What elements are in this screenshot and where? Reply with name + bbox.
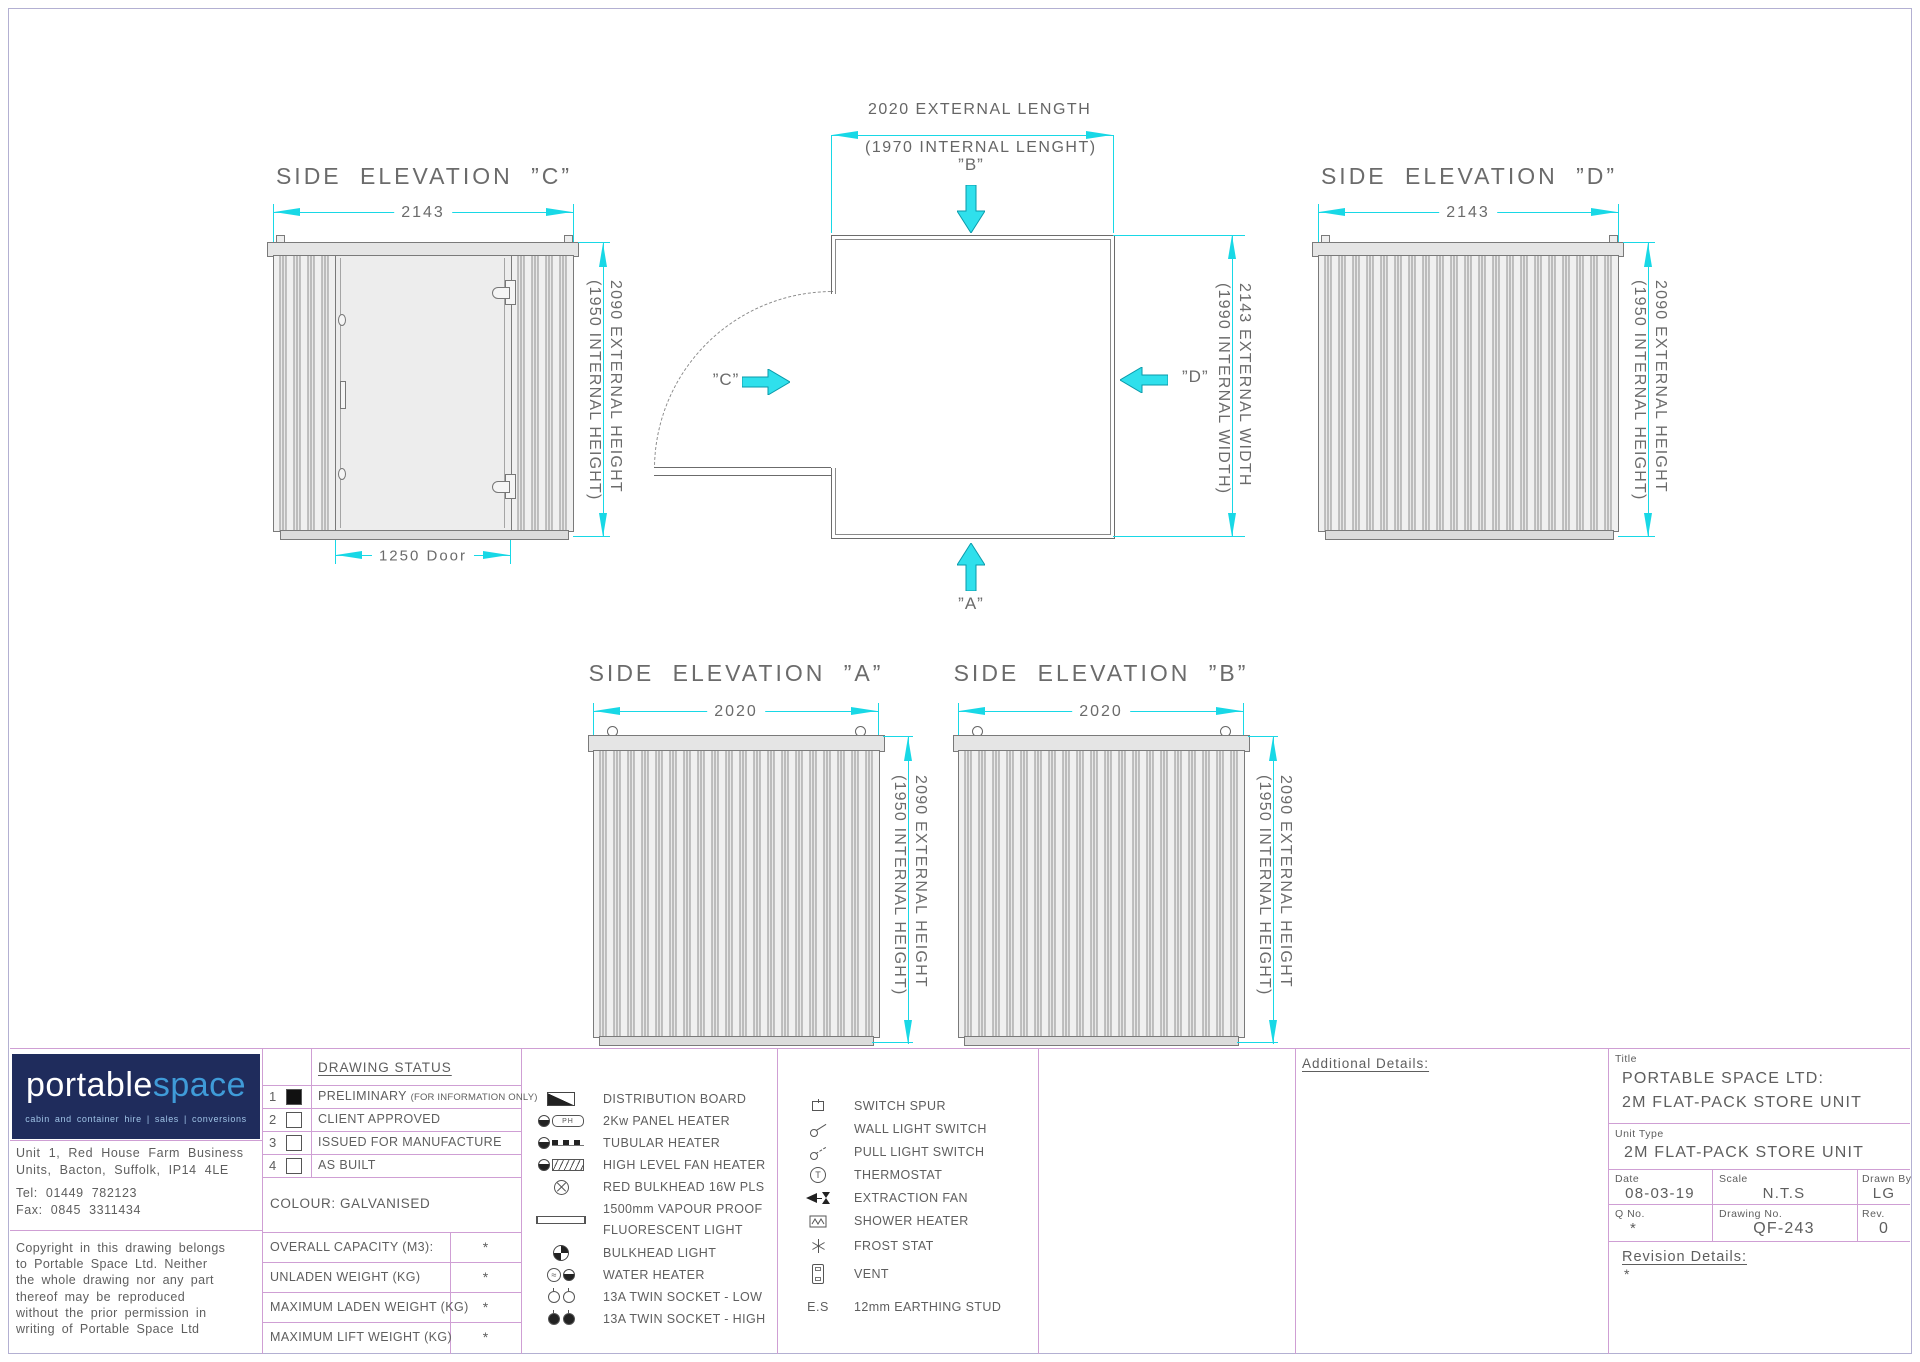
- weight-row-label: OVERALL CAPACITY (M3):: [270, 1232, 433, 1262]
- q-no-label: Q No.: [1615, 1208, 1645, 1220]
- bulkhead-light-icon: [553, 1245, 569, 1261]
- red-bulkhead-icon: [554, 1180, 569, 1195]
- revision-details-value: *: [1624, 1266, 1631, 1282]
- status-checkbox: [286, 1158, 302, 1174]
- door-hinge-icon: [492, 287, 510, 299]
- view-arrow-b-icon: [957, 185, 985, 233]
- unit-type-value: 2M FLAT-PACK STORE UNIT: [1624, 1144, 1864, 1162]
- titleblock-border: [1857, 1169, 1858, 1241]
- titleblock-border: [1608, 1241, 1910, 1242]
- vent-icon: [812, 1264, 824, 1284]
- elevation-c-height-dim: 2090 EXTERNAL HEIGHT (1950 INTERNAL HEIG…: [584, 280, 626, 501]
- dim-arrow-left-icon: [959, 707, 985, 715]
- dim-extension-line: [878, 703, 879, 737]
- dim-extension-line: [1113, 235, 1245, 236]
- dim-arrow-up-icon: [1228, 235, 1236, 259]
- logo-wordmark: portablespace: [12, 1066, 260, 1105]
- water-heater-icon: [547, 1268, 561, 1282]
- company-tel: Tel: 01449 782123: [16, 1185, 244, 1202]
- weight-row-value: *: [450, 1322, 521, 1352]
- titleblock-border: [1038, 1048, 1039, 1354]
- titleblock-border: [1608, 1123, 1910, 1124]
- drawing-title-line2: 2M FLAT-PACK STORE UNIT: [1622, 1094, 1862, 1112]
- view-arrow-d-icon: [1120, 367, 1168, 393]
- legend-item: PH 2Kw PANEL HEATER: [527, 1110, 730, 1132]
- elevation-d-width-dim: 2143: [1439, 204, 1497, 222]
- rev-value: 0: [1879, 1220, 1889, 1238]
- dim-arrow-right-icon: [483, 551, 509, 559]
- heater-lamp-icon: [538, 1115, 550, 1127]
- date-value: 08-03-19: [1625, 1185, 1695, 1202]
- dim-arrow-down-icon: [1228, 513, 1236, 537]
- elevation-c-door: [335, 256, 512, 530]
- titleblock-border: [1608, 1048, 1609, 1354]
- heater-lamp-icon: [538, 1159, 550, 1171]
- dim-arrow-up-icon: [904, 737, 912, 761]
- titleblock-border: [1712, 1169, 1713, 1241]
- weight-row-value: *: [450, 1292, 521, 1322]
- elevation-a-title: SIDE ELEVATION ”A”: [589, 660, 884, 687]
- elevation-b-title: SIDE ELEVATION ”B”: [954, 660, 1249, 687]
- elevation-b-height-dim: 2090 EXTERNAL HEIGHT (1950 INTERNAL HEIG…: [1254, 775, 1296, 996]
- weight-row-label: UNLADEN WEIGHT (KG): [270, 1262, 420, 1292]
- weight-row-label: MAXIMUM LIFT WEIGHT (KG): [270, 1322, 452, 1352]
- additional-details-header: Additional Details:: [1302, 1056, 1429, 1071]
- plan-length-dim-line1: 2020 EXTERNAL LENGTH: [868, 101, 1091, 119]
- elevation-a-base: [599, 1036, 874, 1046]
- door-width-dim: 1250 Door: [372, 548, 474, 565]
- dim-arrow-down-icon: [1269, 1020, 1277, 1044]
- dim-extension-line: [1243, 703, 1244, 737]
- dim-extension-line: [1113, 536, 1245, 537]
- elevation-b-panel: [958, 750, 1245, 1038]
- dim-extension-line: [510, 540, 511, 564]
- legend-item: VENT: [790, 1261, 889, 1287]
- scale-label: Scale: [1719, 1173, 1748, 1185]
- elevation-b-base: [964, 1036, 1239, 1046]
- elevation-a-height-dim: 2090 EXTERNAL HEIGHT (1950 INTERNAL HEIG…: [889, 775, 931, 996]
- twin-socket-low-icon: [548, 1291, 575, 1303]
- door-hinge-icon: [492, 481, 510, 493]
- status-checkbox: [286, 1112, 302, 1128]
- panel-heater-icon: PH: [552, 1115, 584, 1127]
- dim-arrow-up-icon: [1644, 243, 1652, 267]
- titleblock-border: [262, 1177, 521, 1178]
- status-row: 4 AS BUILT: [262, 1154, 521, 1177]
- dim-arrow-down-icon: [599, 513, 607, 537]
- drawing-sheet: SIDE ELEVATION ”C” 2143 1250 Door 2090 E…: [0, 0, 1920, 1362]
- dim-extension-line: [831, 135, 832, 233]
- switch-spur-icon: [811, 1099, 825, 1113]
- legend-item: 13A TWIN SOCKET - LOW: [527, 1286, 762, 1308]
- titleblock-border: [10, 1140, 262, 1141]
- earthing-stud-icon: E.S: [807, 1300, 829, 1314]
- titleblock-border: [1608, 1169, 1910, 1170]
- drawing-no-label: Drawing No.: [1719, 1208, 1782, 1220]
- titleblock-border: [10, 1230, 262, 1231]
- wall-light-switch-icon: [810, 1122, 826, 1137]
- copyright-notice: Copyright in this drawing belongs to Por…: [16, 1240, 258, 1337]
- legend-item: SWITCH SPUR: [790, 1095, 946, 1117]
- elevation-c-width-dim: 2143: [394, 204, 452, 222]
- dim-arrow-left-icon: [832, 131, 858, 139]
- dim-arrow-right-icon: [546, 208, 572, 216]
- legend-item: WATER HEATER: [527, 1264, 705, 1286]
- dim-arrow-left-icon: [274, 208, 300, 216]
- dim-arrow-left-icon: [336, 551, 362, 559]
- dim-arrow-left-icon: [594, 707, 620, 715]
- legend-item: 13A TWIN SOCKET - HIGH: [527, 1308, 766, 1330]
- elevation-c-title: SIDE ELEVATION ”C”: [276, 163, 572, 190]
- revision-details-header: Revision Details:: [1622, 1249, 1747, 1265]
- drawn-by-value: LG: [1873, 1185, 1895, 1202]
- q-no-value: *: [1630, 1220, 1637, 1237]
- distribution-board-icon: [547, 1092, 575, 1106]
- dim-arrow-right-icon: [1086, 131, 1112, 139]
- door-handle-icon: [338, 468, 346, 480]
- legend-item: TUBULAR HEATER: [527, 1132, 720, 1154]
- legend-item: 1500mm VAPOUR PROOF FLUORESCENT LIGHT: [527, 1198, 763, 1242]
- elevation-a-width-dim: 2020: [707, 703, 765, 721]
- frost-stat-icon: [811, 1239, 825, 1253]
- plan-view-walls: [831, 235, 1115, 539]
- drawing-status-header: DRAWING STATUS: [318, 1060, 452, 1075]
- legend-item: E.S 12mm EARTHING STUD: [790, 1296, 1001, 1318]
- drawing-title-line1: PORTABLE SPACE LTD:: [1622, 1070, 1824, 1088]
- dimension-line: [831, 135, 1113, 136]
- plan-open-door-leaf: [654, 467, 831, 476]
- legend-item: T THERMOSTAT: [790, 1164, 942, 1186]
- tubular-heater-icon: [552, 1140, 584, 1146]
- elevation-d-base: [1325, 530, 1614, 540]
- door-lock-slot-icon: [340, 381, 346, 409]
- title-field-label: Title: [1615, 1053, 1637, 1065]
- extraction-fan-icon: [806, 1192, 831, 1204]
- titleblock-border: [1295, 1048, 1296, 1354]
- status-row: 2 CLIENT APPROVED: [262, 1108, 521, 1131]
- drawing-no-value: QF-243: [1753, 1220, 1814, 1238]
- logo-tagline: cabin and container hire | sales | conve…: [12, 1114, 260, 1124]
- legend-item: DISTRIBUTION BOARD: [527, 1088, 746, 1110]
- legend-item: PULL LIGHT SWITCH: [790, 1141, 984, 1163]
- status-checkbox: [286, 1135, 302, 1151]
- plan-label-b: ”B”: [958, 155, 984, 175]
- company-logo: portablespace cabin and container hire |…: [12, 1054, 260, 1139]
- titleblock-border: [1608, 1204, 1910, 1205]
- dim-arrow-down-icon: [1644, 513, 1652, 537]
- elevation-d-height-dim: 2090 EXTERNAL HEIGHT (1950 INTERNAL HEIG…: [1629, 280, 1671, 501]
- titleblock-border: [777, 1048, 778, 1354]
- legend-item: BULKHEAD LIGHT: [527, 1242, 716, 1264]
- company-fax: Fax: 0845 3311434: [16, 1202, 244, 1219]
- legend-item: EXTRACTION FAN: [790, 1187, 968, 1209]
- elevation-c-base: [280, 530, 569, 540]
- status-row: 1 PRELIMINARY (FOR INFORMATION ONLY): [262, 1085, 521, 1108]
- dim-extension-line: [1113, 135, 1114, 233]
- plan-label-d: ”D”: [1182, 367, 1209, 387]
- elevation-d-panel: [1318, 255, 1619, 532]
- company-address: Unit 1, Red House Farm Business Units, B…: [16, 1145, 244, 1219]
- dim-extension-line: [573, 204, 574, 242]
- colour-spec: COLOUR: GALVANISED: [270, 1196, 430, 1211]
- rev-label: Rev.: [1862, 1208, 1885, 1220]
- plan-label-a: ”A”: [958, 594, 984, 614]
- heater-lamp-icon: [563, 1269, 575, 1281]
- weight-row-label: MAXIMUM LADEN WEIGHT (KG): [270, 1292, 469, 1322]
- elevation-a-panel: [593, 750, 880, 1038]
- dim-arrow-down-icon: [904, 1020, 912, 1044]
- heater-lamp-icon: [538, 1137, 550, 1149]
- shower-heater-icon: [809, 1215, 827, 1228]
- dim-arrow-right-icon: [851, 707, 877, 715]
- thermostat-icon: T: [810, 1167, 826, 1183]
- dim-arrow-left-icon: [1319, 208, 1345, 216]
- view-arrow-c-icon: [742, 369, 790, 395]
- door-handle-icon: [338, 314, 346, 326]
- dim-arrow-up-icon: [1269, 737, 1277, 761]
- scale-value: N.T.S: [1763, 1185, 1806, 1202]
- plan-width-dim: 2143 EXTERNAL WIDTH (1990 INTERNAL WIDTH…: [1213, 283, 1255, 494]
- legend-item: WALL LIGHT SWITCH: [790, 1118, 987, 1140]
- plan-label-c: ”C”: [713, 370, 740, 390]
- drawn-by-label: Drawn By: [1862, 1173, 1912, 1185]
- dim-arrow-right-icon: [1591, 208, 1617, 216]
- elevation-d-title: SIDE ELEVATION ”D”: [1321, 163, 1617, 190]
- unit-type-label: Unit Type: [1615, 1128, 1664, 1140]
- legend-item: FROST STAT: [790, 1235, 934, 1257]
- twin-socket-high-icon: [548, 1313, 575, 1325]
- legend-item: RED BULKHEAD 16W PLS: [527, 1176, 765, 1198]
- fluorescent-light-icon: [536, 1216, 586, 1224]
- legend-item: HIGH LEVEL FAN HEATER: [527, 1154, 766, 1176]
- dim-arrow-right-icon: [1216, 707, 1242, 715]
- pull-light-switch-icon: [810, 1145, 826, 1160]
- weight-row-value: *: [450, 1232, 521, 1262]
- legend-item: SHOWER HEATER: [790, 1210, 969, 1232]
- plan-inner-wall-line: [835, 239, 1111, 535]
- elevation-b-width-dim: 2020: [1072, 703, 1130, 721]
- dim-extension-line: [1618, 204, 1619, 242]
- date-label: Date: [1615, 1173, 1639, 1185]
- status-row: 3 ISSUED FOR MANUFACTURE: [262, 1131, 521, 1154]
- titleblock-border: [10, 1048, 1910, 1049]
- weight-row-value: *: [450, 1262, 521, 1292]
- dim-arrow-up-icon: [599, 243, 607, 267]
- view-arrow-a-icon: [957, 543, 985, 591]
- fan-heater-icon: [552, 1159, 584, 1171]
- status-checkbox-checked: [286, 1089, 302, 1105]
